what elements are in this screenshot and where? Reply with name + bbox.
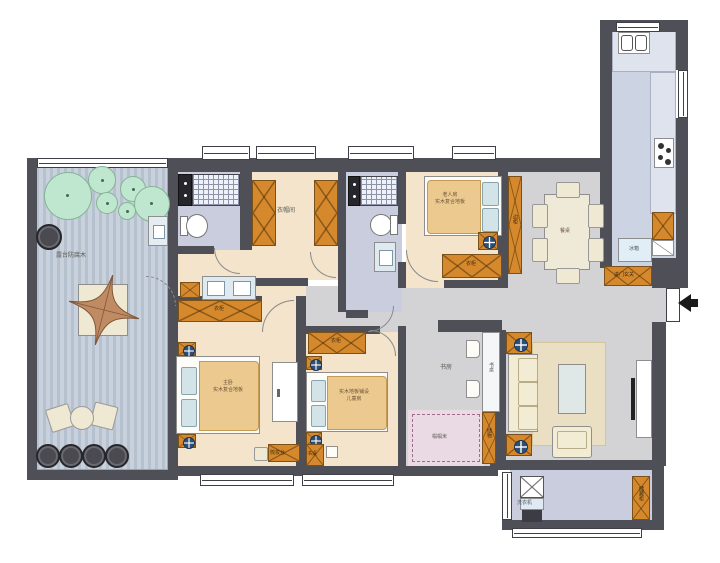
tree-icon xyxy=(88,166,116,194)
elderly-room-label: 老人房 实木复合地板 xyxy=(422,192,478,206)
dressing-table-label: 梳妆台 xyxy=(270,450,285,457)
balcony-dark-unit xyxy=(522,510,542,522)
children-room-label: 实木地板铺设 儿童房 xyxy=(326,389,382,403)
wall xyxy=(338,172,346,280)
terrace-sink xyxy=(148,216,168,246)
shower-icon xyxy=(192,174,240,206)
study-desk-label: 书桌 xyxy=(487,362,494,372)
wall xyxy=(27,158,37,480)
elderly-plant-stand xyxy=(478,232,498,250)
kitchen-corner-unit xyxy=(652,240,674,256)
master-wardrobe-label: 衣柜 xyxy=(214,306,224,313)
nightstand xyxy=(178,434,196,448)
bay-window xyxy=(202,146,250,160)
living-plant-stand xyxy=(506,332,532,354)
dining-chair xyxy=(588,204,604,228)
wall xyxy=(444,280,506,288)
floor-plan: 露台防腐木 衣帽间 老人房 实木复合地板 衣柜 边柜 xyxy=(0,0,720,563)
sofa xyxy=(508,354,538,432)
study-chair xyxy=(466,380,480,398)
dining-table-label: 餐桌 xyxy=(560,228,570,235)
wall xyxy=(652,466,664,530)
wall xyxy=(252,278,308,286)
elderly-room-floor-note: 实木复合地板 xyxy=(422,199,478,206)
terrace-planter xyxy=(36,444,60,468)
wall xyxy=(652,322,666,466)
balcony-cabinet-label: 储藏柜 xyxy=(637,486,644,501)
tree-icon xyxy=(44,172,92,220)
mirror-cabinet xyxy=(272,362,298,422)
bay-window xyxy=(256,146,316,160)
balcony-bottom-window xyxy=(512,528,642,538)
planter-icon xyxy=(36,224,62,250)
desk-chair xyxy=(326,446,338,458)
terrace-round-table xyxy=(70,406,94,430)
bathroom2-sink xyxy=(374,242,396,272)
terrace-label: 露台防腐木 xyxy=(56,252,86,260)
tree-icon xyxy=(118,202,136,220)
kitchen-top-window xyxy=(616,22,660,32)
master-bottom-window xyxy=(200,474,294,486)
sideboard-cabinet xyxy=(508,176,522,274)
study-chair xyxy=(466,340,480,358)
entry-arrow-stem xyxy=(691,299,698,307)
sideboard-label: 边柜 xyxy=(511,214,518,224)
master-room-label: 主卧 实木复合地板 xyxy=(200,380,256,394)
bay-window xyxy=(348,146,414,160)
fridge-label: 冰箱 xyxy=(629,246,639,253)
children-desk-label: 书桌 xyxy=(307,451,317,458)
kitchen-cabinet xyxy=(652,212,674,240)
tatami-label: 榻榻米 xyxy=(432,434,447,441)
entry-arrow-icon xyxy=(678,294,691,312)
wall xyxy=(600,20,612,268)
terrace-planter xyxy=(105,444,129,468)
wall xyxy=(652,258,688,288)
bay-window xyxy=(452,146,496,160)
kitchen-right-window xyxy=(678,70,688,118)
master-bed xyxy=(176,356,260,434)
tv-icon xyxy=(631,378,635,420)
corridor-cabinet xyxy=(180,282,200,298)
study-label: 书房 xyxy=(440,364,452,372)
elderly-bed xyxy=(424,176,502,236)
children-wardrobe-label: 衣柜 xyxy=(331,338,341,345)
shower-icon xyxy=(360,176,398,206)
wall xyxy=(676,20,688,70)
wall xyxy=(27,470,178,480)
entry-cabinet-label: 进门玄关 xyxy=(614,272,634,279)
closet-label: 衣帽间 xyxy=(277,207,295,215)
nightstand xyxy=(306,356,322,370)
master-room-floor-note: 实木复合地板 xyxy=(200,387,256,394)
stove-icon xyxy=(654,138,674,168)
terrace-planter xyxy=(59,444,83,468)
dressing-stool xyxy=(254,447,268,461)
washing-machine xyxy=(520,476,544,498)
wall xyxy=(168,158,612,172)
terrace-planter xyxy=(82,444,106,468)
children-room-name: 儿童房 xyxy=(326,396,382,403)
living-plant-stand xyxy=(506,434,532,456)
balcony-left-window xyxy=(502,472,512,520)
wall xyxy=(676,118,688,258)
master-room-name: 主卧 xyxy=(200,380,256,387)
armchair xyxy=(552,426,592,458)
wall xyxy=(398,326,406,466)
washer-label: 洗衣机 xyxy=(517,500,532,507)
nightstand xyxy=(178,342,196,356)
dining-chair xyxy=(556,182,580,198)
elderly-room-name: 老人房 xyxy=(422,192,478,199)
tatami-cabinet-label: 储物 xyxy=(485,428,492,438)
bathroom1-counter xyxy=(178,174,192,206)
elderly-wardrobe-label: 衣柜 xyxy=(466,261,476,268)
wall xyxy=(398,262,406,288)
children-bottom-window xyxy=(302,474,394,486)
tv-cabinet xyxy=(636,360,652,438)
dining-chair xyxy=(556,268,580,284)
bathroom2-counter xyxy=(348,176,360,206)
closet-wardrobe-right xyxy=(314,180,338,246)
children-room-floor-note: 实木地板铺设 xyxy=(326,389,382,396)
dining-chair xyxy=(532,204,548,228)
double-vanity xyxy=(202,276,256,300)
dining-chair xyxy=(532,238,548,262)
kitchen-sink xyxy=(618,32,650,54)
wall xyxy=(240,172,252,250)
study-desk xyxy=(482,332,500,412)
tree-icon xyxy=(96,192,118,214)
closet-wardrobe-left xyxy=(252,180,276,246)
dining-chair xyxy=(588,238,604,262)
wall xyxy=(438,320,502,332)
wall xyxy=(346,310,368,318)
tatami-cabinet xyxy=(482,412,496,464)
wall xyxy=(398,172,406,224)
coffee-table xyxy=(558,364,586,414)
wall xyxy=(490,460,662,470)
wall xyxy=(338,280,346,312)
wall xyxy=(178,246,214,254)
